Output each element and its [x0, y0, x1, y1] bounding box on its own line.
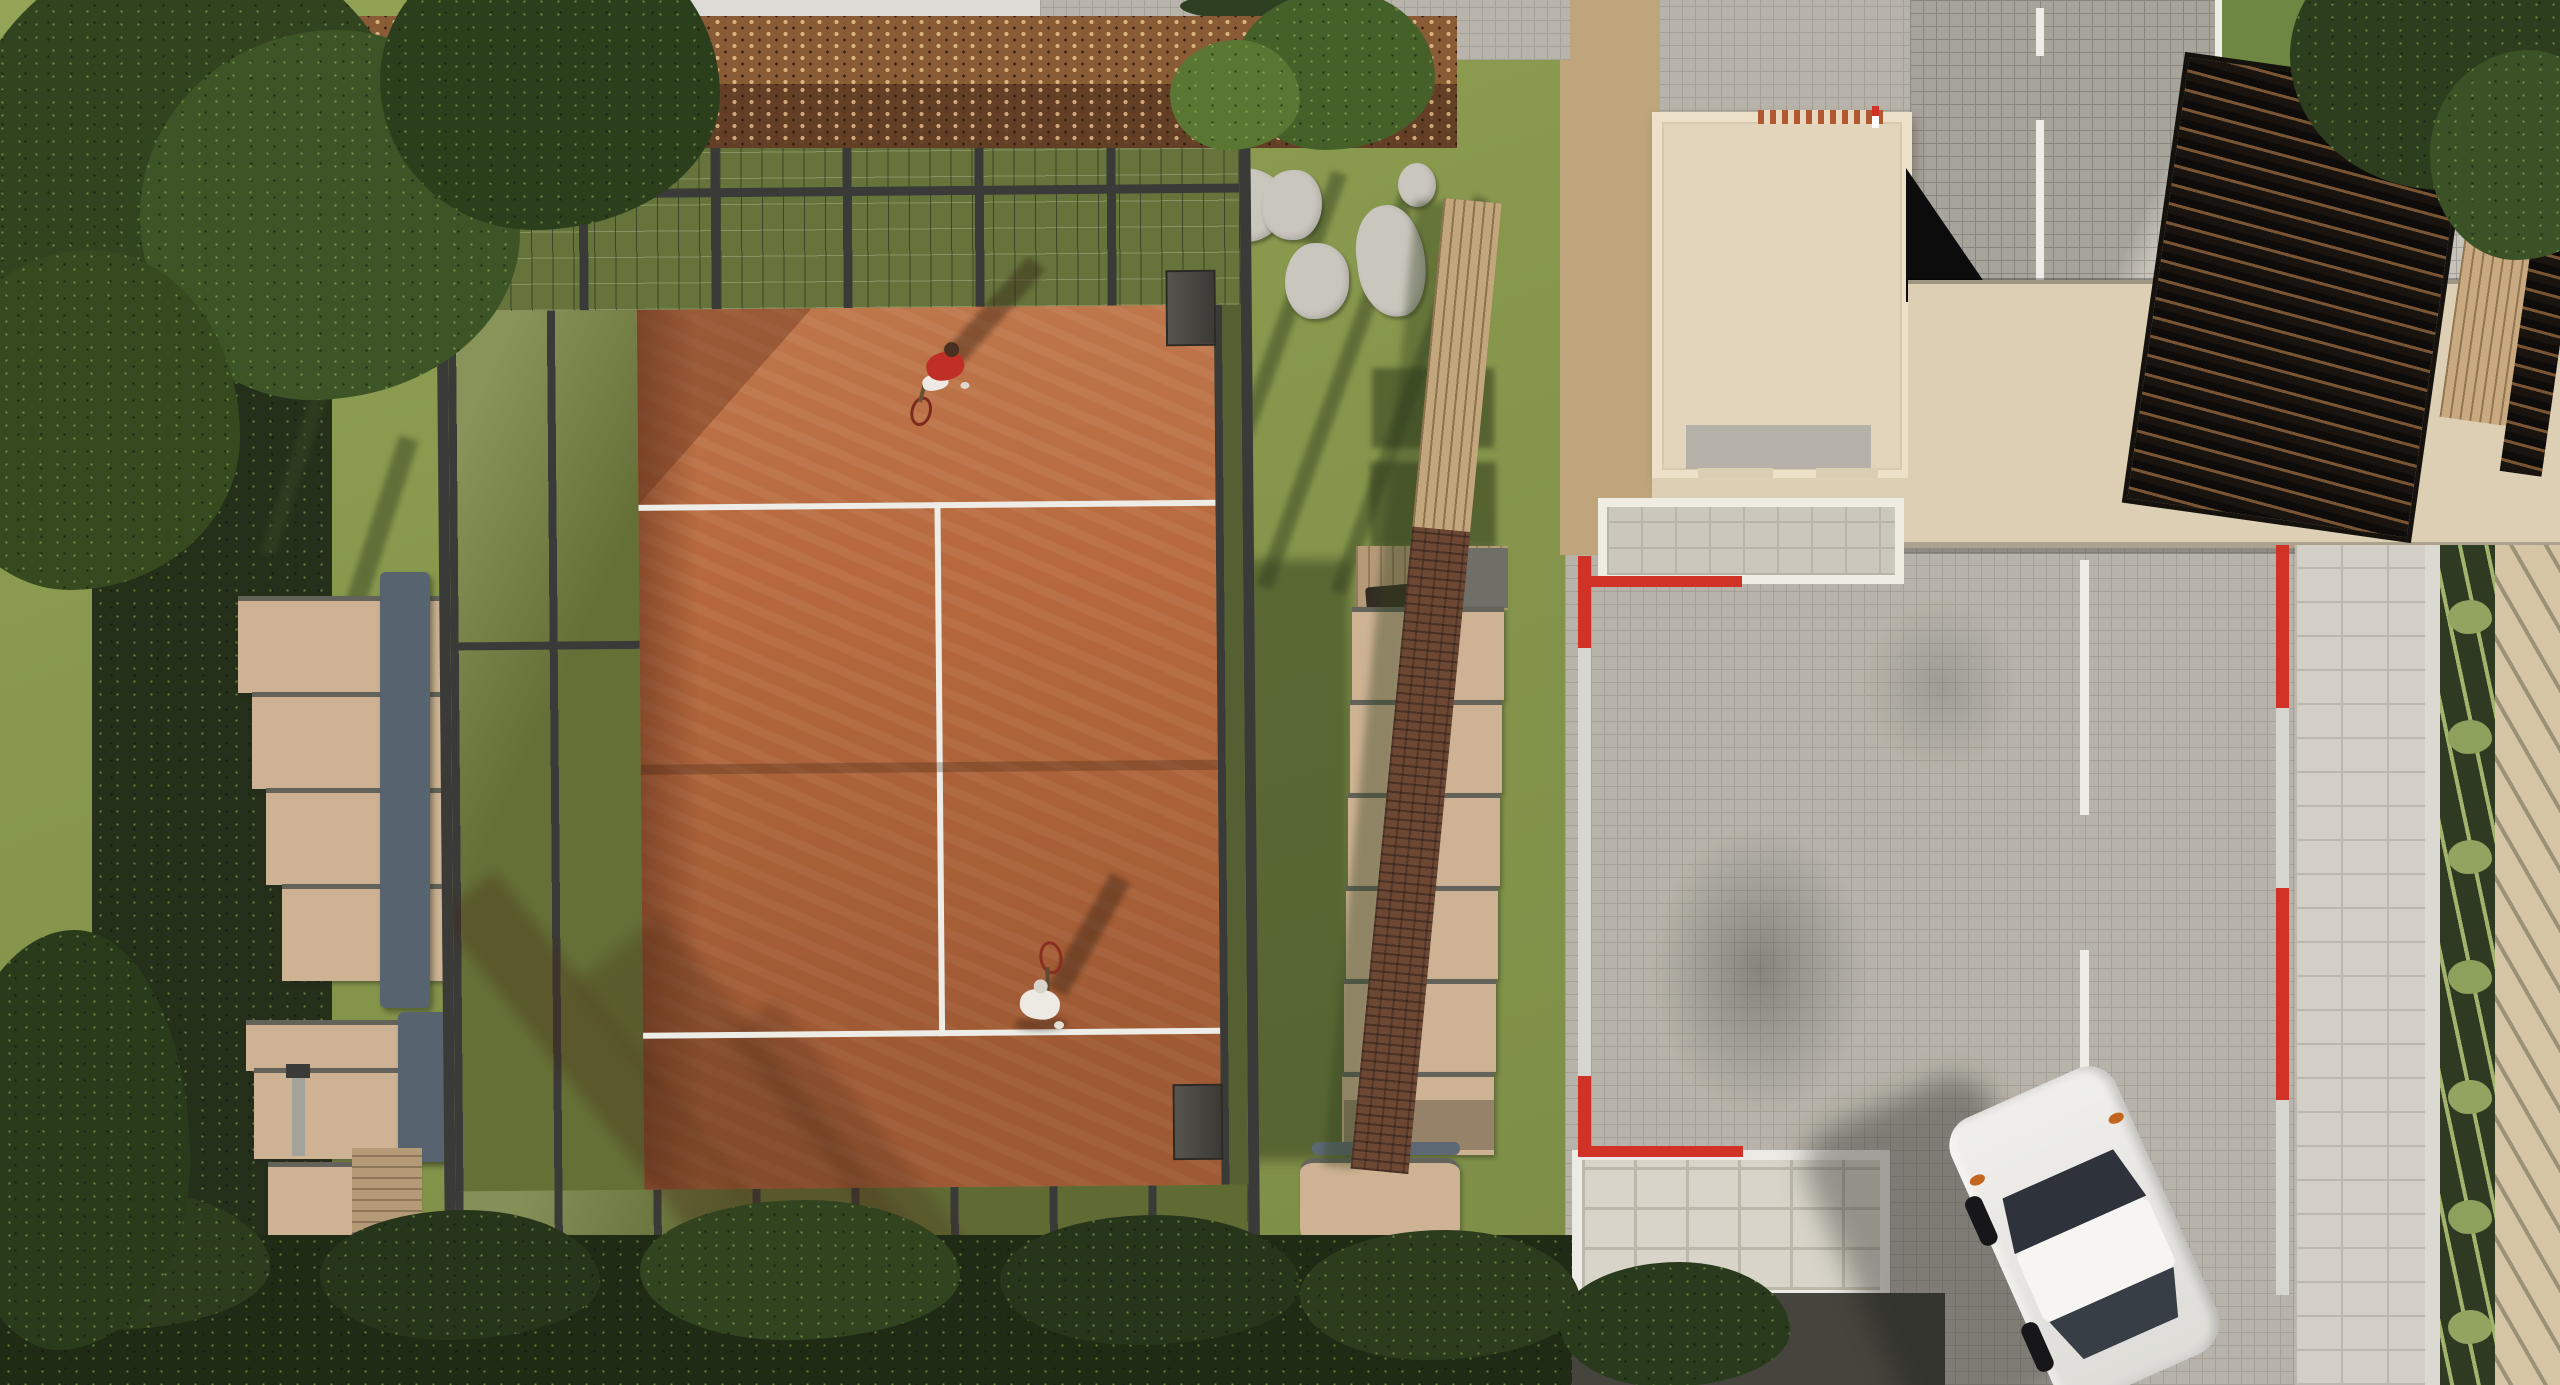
clubhouse-roof-tile-detail — [1758, 110, 1883, 124]
left-kerb-pole-gray — [1578, 648, 1591, 1076]
car-wheel-front-left — [1963, 1194, 2001, 1249]
plant-tuft-1 — [2448, 600, 2492, 634]
court-left-rail — [451, 641, 640, 651]
plant-tuft-4 — [2448, 960, 2492, 994]
red-kerb-top-bar — [1590, 576, 1742, 587]
lamp-post-mid — [292, 1072, 305, 1156]
bottom-bush-3 — [640, 1200, 960, 1340]
player2-head — [1034, 979, 1048, 993]
plant-tuft-5 — [2448, 1080, 2492, 1114]
car-indicator-right — [2107, 1110, 2126, 1126]
clubhouse-roof-inset — [1686, 425, 1871, 469]
garden-bench-short — [398, 1012, 448, 1162]
left-lounger-2 — [252, 692, 466, 789]
patio-bottom-red-edge — [1578, 1146, 1743, 1157]
padel-court — [435, 76, 1260, 1283]
car-body — [1940, 1057, 2231, 1385]
court-light-box-bottom — [1173, 1084, 1224, 1160]
parked-car — [1925, 1080, 2245, 1385]
plant-tuft-7 — [2448, 1310, 2492, 1344]
barrier-pole-red-1 — [2276, 545, 2289, 708]
player1-shoe — [960, 382, 969, 389]
parking-line-1 — [2080, 560, 2089, 815]
stone-walkway — [2295, 545, 2425, 1385]
small-tree-canopy-2 — [1170, 40, 1300, 150]
left-kerb-pole-red-top — [1578, 556, 1591, 648]
planter-curb — [2425, 545, 2440, 1385]
aerial-render-scene — [0, 0, 2560, 1385]
barrier-pole-white-2 — [2276, 1100, 2289, 1295]
bottom-bush-5 — [1300, 1230, 1580, 1360]
stepping-stone-3 — [1285, 243, 1349, 319]
bottom-center-tree — [1560, 1262, 1790, 1385]
stepping-stone-2 — [1262, 170, 1322, 240]
roof-flag-pole — [1872, 106, 1879, 128]
tan-side-zone — [1560, 0, 1660, 555]
garden-bench-long — [380, 572, 430, 1008]
plant-tuft-6 — [2448, 1200, 2492, 1234]
street-dash-1 — [2036, 8, 2044, 56]
player1-head — [944, 342, 959, 357]
bottom-bush-2 — [320, 1210, 600, 1340]
bottom-bush-4 — [1000, 1215, 1300, 1345]
barrier-pole-white-1 — [2276, 708, 2289, 888]
plaza-tree-shadow — [1610, 770, 1910, 1170]
plant-tuft-2 — [2448, 720, 2492, 754]
court-light-box-top — [1165, 270, 1216, 346]
barrier-pole-red-2 — [2276, 888, 2289, 1100]
plant-tuft-3 — [2448, 840, 2492, 874]
beige-terrace-strip — [2495, 545, 2560, 1385]
plaza-soft-shade — [1830, 560, 2050, 810]
lamp-head-mid — [286, 1064, 310, 1078]
car-wheel-rear-left — [2019, 1320, 2057, 1375]
car-indicator-left — [1968, 1172, 1987, 1188]
street-dash-2 — [2036, 120, 2044, 300]
player2-shoe — [1054, 1021, 1064, 1029]
